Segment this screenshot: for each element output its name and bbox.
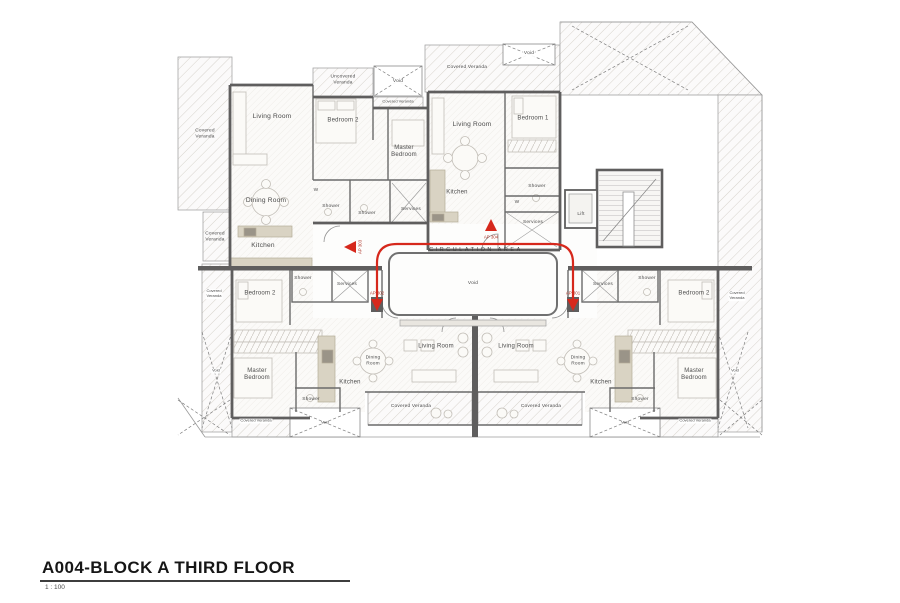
central-void <box>389 253 557 326</box>
drawing-title: A004-BLOCK A THIRD FLOOR <box>42 558 295 578</box>
stairs <box>597 170 662 247</box>
floor-plan-sheet: Living Room Bedroom 2 Master Bedroom Din… <box>0 0 900 603</box>
drawing-scale: 1 : 100 <box>45 584 65 591</box>
floor-plan-drawing <box>0 0 900 603</box>
title-divider <box>40 580 350 582</box>
lift <box>565 190 597 228</box>
